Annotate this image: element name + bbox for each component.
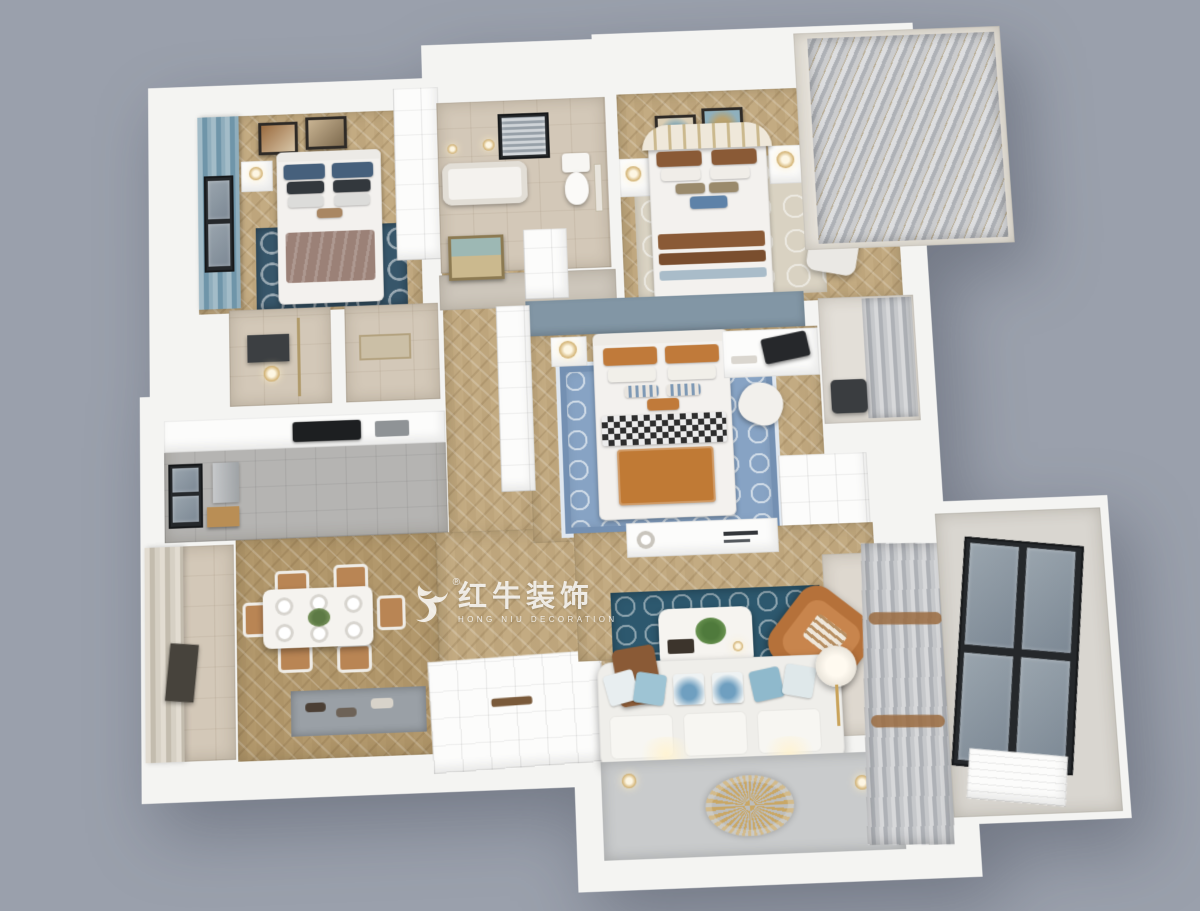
pillow <box>287 181 325 195</box>
shower-partition <box>497 112 550 159</box>
balcony-window <box>952 536 1084 775</box>
place-setting <box>345 621 364 640</box>
scene-3d <box>0 0 1200 900</box>
pillow-striped <box>624 385 659 398</box>
shower-room-floor <box>344 303 440 403</box>
kitchen-cooktop <box>292 420 361 442</box>
curtain-tieback <box>868 612 942 625</box>
laptop <box>760 330 811 364</box>
bedroom2-floor <box>197 110 423 315</box>
master-bay-floor <box>818 295 921 424</box>
pillow <box>334 193 370 206</box>
towel-rail <box>594 164 604 212</box>
master-desk <box>722 328 820 379</box>
kitchen-sink <box>375 420 409 437</box>
gold-faucet <box>447 144 457 154</box>
entry-console <box>427 650 608 774</box>
bedroom2-wall-art-2 <box>305 116 347 150</box>
pillow <box>711 148 757 165</box>
bathroom2-mirror-tv <box>247 334 289 363</box>
bathroom2-floor <box>229 307 332 407</box>
pillow <box>608 367 657 383</box>
toilet-tank <box>562 153 590 173</box>
dining-chair <box>377 595 406 631</box>
master-wardrobe <box>496 305 536 492</box>
sofa-pillow <box>633 671 667 706</box>
sofa-pillow <box>781 663 816 699</box>
gold-fixture <box>483 139 495 151</box>
laundry-balcony-floor <box>145 545 237 764</box>
console-slot <box>724 539 750 543</box>
entry-mat <box>291 686 427 737</box>
sunburst-mirror <box>704 774 796 838</box>
master-bay-curtains <box>862 297 919 419</box>
pillow <box>283 163 325 180</box>
pillow <box>675 183 705 195</box>
pillow-blue-bolster <box>690 195 728 209</box>
table-lamp <box>622 773 637 788</box>
keyboard <box>731 355 757 364</box>
bedroom1-throw-1 <box>658 230 766 249</box>
pillow <box>603 346 658 366</box>
cardboard-box <box>207 506 240 527</box>
pillow <box>288 195 324 208</box>
hall-door <box>523 228 569 299</box>
curtain-tieback <box>871 715 945 728</box>
pillow <box>709 181 739 193</box>
console-slot <box>723 531 758 536</box>
tv-wall <box>601 751 907 861</box>
place-setting <box>344 594 363 613</box>
shoes <box>305 702 326 712</box>
pillow-bolster <box>647 398 680 411</box>
pillow <box>665 344 720 364</box>
hall-landscape-art <box>448 234 505 281</box>
pillow <box>656 150 702 167</box>
leaning-picture <box>165 643 199 702</box>
balcony-sill <box>967 748 1068 806</box>
console-decor <box>491 696 532 707</box>
dining-chair <box>337 643 372 673</box>
place-setting <box>275 597 294 616</box>
place-setting <box>275 623 294 642</box>
sofa-pillow-coral <box>712 672 744 704</box>
bedroom1-fan-headboard <box>641 121 772 150</box>
sofa-pillow <box>748 666 785 703</box>
bedroom2-wall-art-1 <box>258 122 298 156</box>
toilet <box>564 172 589 205</box>
kitchen-window <box>168 463 203 528</box>
round-vent <box>636 530 655 549</box>
orange-bed-runner <box>617 446 716 506</box>
bedroom2-bed <box>276 149 384 305</box>
pillow <box>668 365 717 381</box>
pillow-striped <box>666 383 701 396</box>
potted-plant <box>695 617 727 645</box>
table-centerpiece <box>308 608 331 627</box>
pillow <box>661 168 701 182</box>
kitchen-floor <box>164 411 448 544</box>
floorplan <box>99 12 1138 911</box>
bedroom2-wardrobe <box>393 87 443 261</box>
shoes <box>336 707 357 717</box>
shoes <box>371 698 394 709</box>
bathtub <box>442 161 528 206</box>
gingham-blanket <box>601 412 727 446</box>
place-setting <box>310 624 329 643</box>
kitchen-shelving <box>213 462 240 503</box>
master-bed <box>592 329 736 520</box>
bedroom1-throw-2 <box>659 250 766 266</box>
bay-chair <box>830 379 868 414</box>
gold-tray <box>733 641 744 652</box>
render-canvas: ® 红牛装饰 HONG NIU DECORATION <box>0 0 1200 900</box>
media-console <box>626 518 779 558</box>
pillow <box>710 166 750 180</box>
dining-table <box>263 586 374 649</box>
bedroom1-bed <box>648 135 774 301</box>
bathroom2-gold-mirror <box>264 366 280 382</box>
books <box>667 639 694 654</box>
pillow <box>332 162 374 179</box>
shower-niche <box>359 333 411 360</box>
bedroom1-bay <box>793 26 1014 250</box>
bedroom1-throw-blue <box>659 267 767 281</box>
pillow <box>317 208 343 219</box>
sofa-pillow-coral <box>673 673 705 705</box>
bay-curtains <box>807 32 1008 244</box>
pillow <box>333 179 371 193</box>
bedroom2-blanket <box>285 230 375 284</box>
balcony-floor <box>935 507 1123 817</box>
bedroom2-window <box>204 175 235 272</box>
shower-glass-edge <box>297 318 301 397</box>
